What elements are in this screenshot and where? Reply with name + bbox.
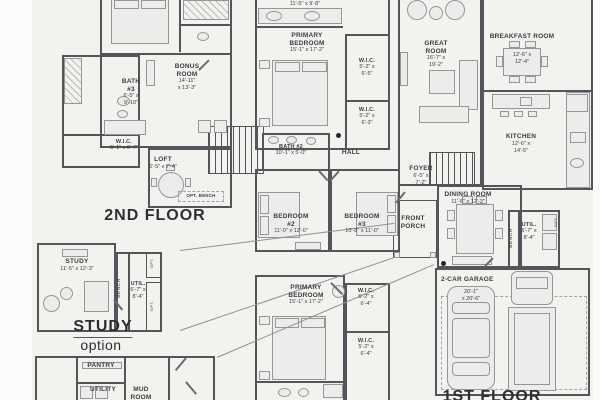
room-label-util-option: UTIL. 6'-7" x 8'-4" [130, 281, 145, 301]
caption-1st-floor: 1ST FLOOR [443, 388, 542, 400]
table-symbol [456, 204, 494, 254]
shower-symbol [323, 384, 343, 398]
dresser-symbol [295, 242, 321, 250]
armchair-symbol [407, 0, 427, 20]
room-label-bedroom2: BEDROOM #2 11'-0" x 12'-0" [273, 213, 308, 235]
chair-symbol [151, 178, 157, 187]
left-margin [0, 0, 32, 400]
wall [181, 24, 232, 26]
car-rear-symbol [452, 362, 490, 376]
room-label-dining: DINING ROOM 11'-6" x 12'-3" [445, 191, 492, 206]
closet-symbol [183, 0, 229, 20]
bathtub-symbol [104, 120, 146, 135]
nightstand-symbol [259, 118, 270, 127]
chair-symbol [214, 120, 227, 133]
room-label-foyer: FOYER 6'-5" x 7'-2" [409, 165, 432, 186]
wall [345, 100, 390, 102]
toilet-symbol [278, 388, 291, 397]
room-label-bath2: BATH #2 10'-1" x 5'-0" [276, 144, 307, 157]
room-label-great-room: GREAT ROOM 16'-7" x 19'-2" [424, 40, 447, 69]
room-label-hall: HALL [342, 149, 360, 157]
chair-symbol [495, 210, 503, 221]
chair-symbol [447, 210, 455, 221]
toilet-symbol [117, 110, 128, 118]
room-label-option-wic1: W.I.C. 5'-2" x 6'-4" [358, 288, 374, 308]
sink-symbol [570, 158, 584, 168]
wall [76, 356, 78, 400]
room-label-wic2: W.I.C. 5'-2" x 6'-3" [359, 107, 375, 127]
pillow-symbol [141, 0, 166, 9]
room-label-wic-2f: W.I.C. 5'-1" x 6'-7" [110, 139, 138, 152]
chair-symbol [541, 56, 548, 67]
sink-symbol [266, 11, 282, 21]
room-label-util: UTIL. 6'-7" x 8'-4" [521, 222, 536, 242]
room-label-garage: 2-CAR GARAGE [441, 276, 494, 284]
chair-symbol [495, 228, 503, 239]
sink-symbol [304, 11, 320, 21]
room-outline-breakfast [482, 0, 593, 92]
chair-symbol [509, 76, 520, 83]
label-util-opt: OPT. [553, 216, 558, 227]
stool-symbol [528, 111, 537, 117]
sink-symbol [286, 136, 297, 144]
pillow-symbol [302, 62, 327, 72]
room-label-front-porch: FRONT PORCH [401, 215, 425, 230]
room-label-loft: LOFT 6'-5" x 7'-4" [149, 156, 177, 171]
sofa-symbol [419, 106, 469, 123]
wall [179, 0, 181, 52]
pillow-symbol [260, 195, 269, 214]
range-symbol [570, 132, 586, 143]
nightstand-symbol [259, 371, 270, 380]
caption-2nd-floor: 2ND FLOOR [104, 207, 205, 225]
porch-column-symbol [394, 252, 400, 258]
pillow-symbol [275, 62, 300, 72]
table-symbol [43, 295, 60, 312]
car-roof-symbol [452, 318, 490, 358]
truck-bed-inner-symbol [514, 313, 550, 385]
room-dims-garage: 20'-1" x 20'-6" [462, 289, 480, 303]
sink-symbol [520, 97, 532, 106]
room-label-wic1: W.I.C. 5'-2" x 6'-5" [359, 58, 375, 78]
room-label-pantry: PANTRY [87, 362, 114, 370]
caption-study-option: option [80, 337, 121, 353]
label-opt-bottom: OPT. [149, 300, 154, 311]
chair-symbol [509, 41, 520, 48]
credenza-symbol [62, 249, 88, 257]
room-label-mud-room: MUD ROOM [130, 386, 151, 400]
nightstand-symbol [259, 60, 270, 69]
room-outline-wic-column [345, 34, 390, 150]
room-label-kitchen: KITCHEN 12'-6" x 14'-5" [506, 133, 536, 154]
chair-symbol [185, 178, 191, 187]
toilet-symbol [306, 137, 316, 145]
table-symbol [429, 6, 443, 20]
sofa-symbol [459, 60, 478, 110]
stool-symbol [500, 111, 509, 117]
wall [78, 382, 124, 384]
right-margin [593, 0, 600, 400]
sink-symbol [268, 136, 279, 144]
room-label-primary-bath: 11'-5" x 9'-8" [290, 1, 320, 8]
wall [257, 26, 343, 28]
pillow-symbol [114, 0, 139, 9]
armchair-symbol [445, 0, 465, 20]
wall [168, 356, 170, 400]
reference-dot [441, 261, 446, 266]
desk-symbol [84, 281, 109, 312]
room-label-option-wic2: W.I.C. 5'-2" x 6'-4" [358, 338, 374, 358]
label-opt-top: OPT. [149, 257, 154, 268]
cabinet-symbol [146, 60, 155, 86]
wall [102, 53, 230, 55]
sink-symbol [197, 32, 209, 41]
floor-plan-sheet: BATH #3 6'-5" x 9'-10" BONUS ROOM 14'-11… [0, 0, 600, 400]
wall [345, 331, 390, 333]
dryer-symbol [542, 233, 557, 250]
chair-symbol [525, 41, 536, 48]
label-bench: BENCH [509, 228, 514, 248]
room-label-primary-option: PRIMARY BEDROOM 15'-1" x 17'-2" [288, 284, 323, 306]
closet-symbol [64, 58, 82, 104]
pillow-symbol [260, 216, 269, 235]
porch-column-symbol [430, 252, 436, 258]
room-label-primary-bedroom: PRIMARY BEDROOM 15'-1" x 17'-2" [289, 32, 324, 54]
room-label-bedroom3: BEDROOM #3 10'-8" x 11'-0" [344, 213, 379, 235]
chair-symbol [447, 228, 455, 239]
label-bench-option: BENCH [117, 278, 122, 298]
reference-dot [336, 133, 341, 138]
chair-symbol [60, 287, 73, 300]
wall [518, 212, 520, 266]
stairs-symbol [429, 152, 475, 186]
truck-window-symbol [516, 277, 548, 289]
chair-symbol [496, 56, 503, 67]
pillow-symbol [387, 195, 396, 213]
label-opt-bench: OPT. BENCH [186, 193, 215, 198]
coffee-table-symbol [429, 70, 455, 94]
media-cabinet-symbol [400, 52, 408, 86]
stool-symbol [514, 111, 523, 117]
chair-symbol [198, 120, 211, 133]
room-label-bonus-room: BONUS ROOM 14'-11" x 13'-3" [175, 63, 199, 92]
sink-symbol [298, 388, 309, 397]
room-label-study: STUDY 11'-5" x 12'-3" [60, 258, 93, 273]
wall [257, 381, 343, 383]
car-windshield-symbol [452, 302, 490, 314]
nightstand-symbol [259, 316, 270, 325]
room-label-utility: UTILITY [90, 386, 116, 394]
room-label-bath3: BATH #3 6'-5" x 9'-10" [122, 78, 140, 107]
caption-study: STUDY [73, 318, 132, 338]
wall [124, 356, 126, 400]
room-label-breakfast: BREAKFAST ROOM [490, 33, 555, 41]
chair-symbol [525, 76, 536, 83]
room-dims-breakfast: 12'-6" x 12'-4" [513, 52, 531, 66]
fridge-symbol [566, 94, 588, 112]
